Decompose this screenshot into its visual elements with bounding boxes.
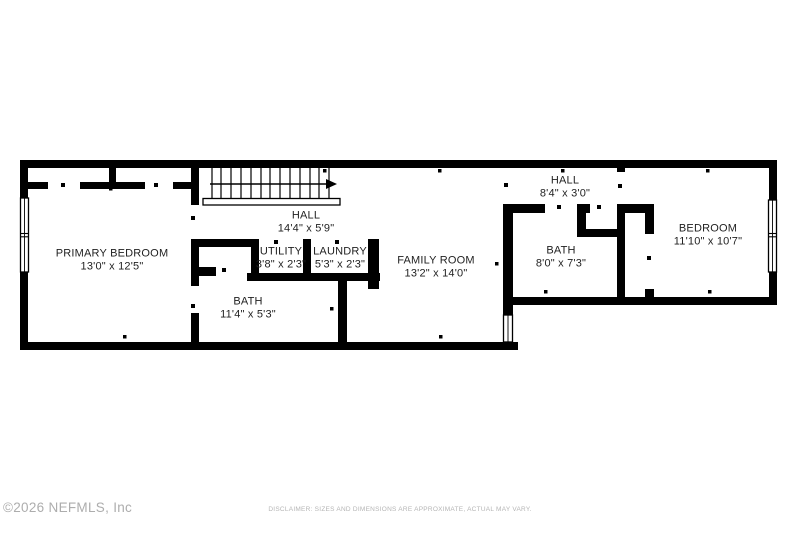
wall-bath-right — [338, 273, 347, 342]
room-label-bedroom: BEDROOM 11'10" x 10'7" — [674, 223, 742, 248]
room-name: HALL — [278, 210, 335, 223]
room-dims: 13'2" x 14'0" — [397, 267, 475, 280]
wall-bath2-bedroom — [617, 204, 625, 305]
room-dims: 11'4" x 5'3" — [220, 308, 276, 321]
room-dims: 8'0" x 7'3" — [536, 257, 586, 270]
window-symbol-bottom — [504, 315, 513, 342]
room-name: LAUNDRY — [313, 246, 367, 259]
wall-right-upper — [769, 168, 777, 200]
wall-bottom-left — [20, 342, 518, 350]
room-dims: 14'4" x 5'9" — [278, 222, 335, 235]
room-dims: 11'10" x 10'7" — [674, 235, 742, 248]
window-symbol-right — [769, 200, 777, 272]
stair-bottom-rail — [203, 199, 340, 206]
room-name: BATH — [536, 245, 586, 258]
wall-hall-upper-bottom-a — [503, 204, 545, 213]
wall-closet-divider — [109, 160, 116, 189]
room-name: PRIMARY BEDROOM — [56, 248, 169, 261]
window-symbol-left — [21, 198, 29, 272]
room-label-hall-upper: HALL 8'4" x 3'0" — [540, 175, 590, 200]
room-label-laundry: LAUNDRY 5'3" x 2'3" — [313, 246, 367, 271]
room-name: FAMILY ROOM — [397, 255, 475, 268]
room-label-primary-bedroom: PRIMARY BEDROOM 13'0" x 12'5" — [56, 248, 169, 273]
room-name: BATH — [220, 296, 276, 309]
wall-bedroom-closet-upper — [645, 213, 654, 234]
room-dims: 13'0" x 12'5" — [56, 260, 169, 273]
floorplan-page: PRIMARY BEDROOM 13'0" x 12'5" HALL 14'4"… — [0, 0, 800, 533]
room-label-hall-main: HALL 14'4" x 5'9" — [278, 210, 335, 235]
room-dims: 3'8" x 2'3" — [256, 258, 306, 271]
wall-familyroom-right — [503, 205, 513, 297]
wall-closet-a — [25, 182, 48, 189]
wall-laundry-right — [368, 239, 379, 289]
wall-bedroom-stairs — [191, 160, 199, 205]
wall-bedroom-closet-top — [617, 204, 654, 213]
wall-bath-stub — [199, 267, 216, 276]
wall-bedroom-closet-lower — [645, 289, 654, 305]
wall-utility-laundry-bottom — [247, 273, 380, 281]
room-label-family-room: FAMILY ROOM 13'2" x 14'0" — [397, 255, 475, 280]
stair-treads — [212, 168, 329, 198]
wall-bedroom-entry-upper — [617, 160, 625, 172]
copyright-text: ©2026 NEFMLS, Inc — [3, 500, 132, 515]
stairs-direction-arrow — [210, 179, 337, 189]
room-name: BEDROOM — [674, 223, 742, 236]
room-label-bath-second: BATH 8'0" x 7'3" — [536, 245, 586, 270]
wall-left-lower — [20, 272, 28, 350]
wall-nook-bottom — [577, 229, 617, 237]
wall-hall-utility-top — [191, 239, 259, 247]
wall-bottom-right — [503, 297, 777, 305]
wall-bedroom-bath-lower — [191, 313, 199, 350]
room-label-utility: UTILITY 3'8" x 2'3" — [256, 246, 306, 271]
stairs-symbol — [203, 168, 340, 205]
room-name: HALL — [540, 175, 590, 188]
wall-top — [20, 160, 777, 168]
room-label-bath-primary: BATH 11'4" x 5'3" — [220, 296, 276, 321]
room-name: UTILITY — [256, 246, 306, 259]
room-dims: 8'4" x 3'0" — [540, 187, 590, 200]
room-dims: 5'3" x 2'3" — [313, 258, 367, 271]
disclaimer-text: DISCLAIMER: SIZES AND DIMENSIONS ARE APP… — [268, 506, 531, 513]
